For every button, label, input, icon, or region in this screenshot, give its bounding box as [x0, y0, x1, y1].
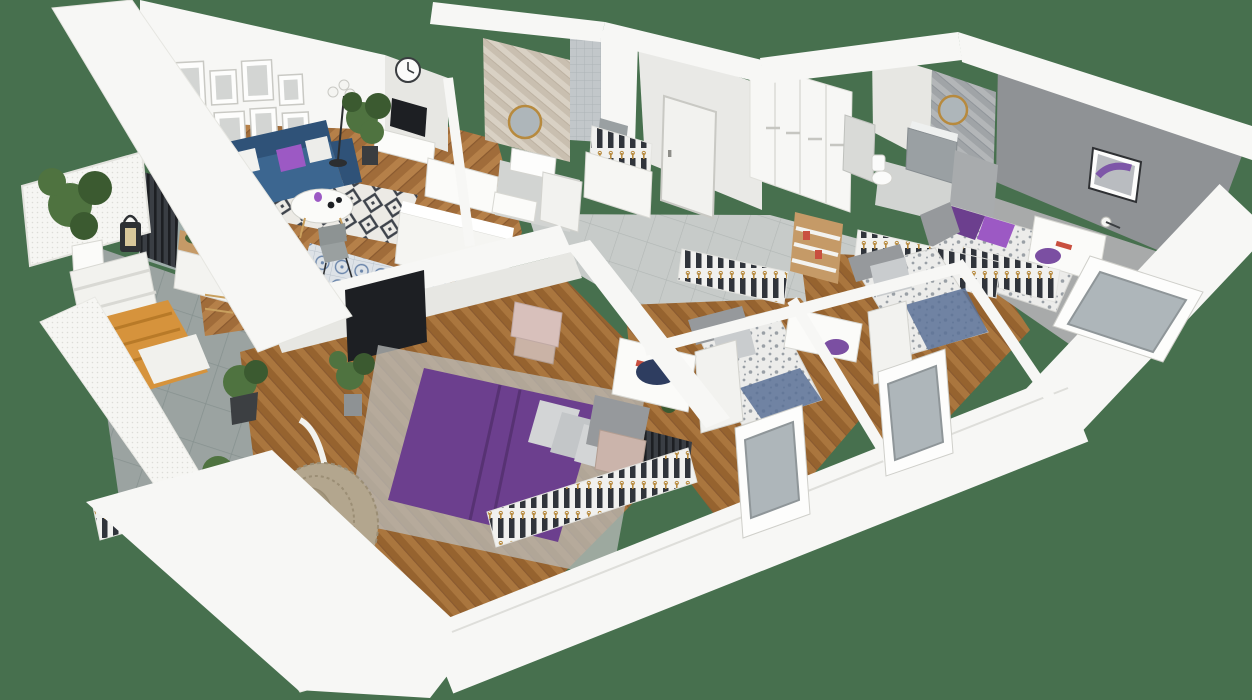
door-handle: [668, 150, 671, 157]
window-bedroom1: [735, 405, 810, 538]
apartment-isometric-svg: [0, 0, 1252, 700]
window-bedroom2: [878, 349, 953, 476]
wall-clock: [396, 58, 420, 82]
shower-tile-wall: [570, 28, 601, 142]
vase: [314, 192, 322, 202]
floor-plan-render: [0, 0, 1252, 700]
bedroom3-chair: [1035, 248, 1061, 264]
bath2-round-mirror: [939, 96, 967, 124]
appliance-tower: [843, 115, 875, 182]
bath1-round-mirror: [509, 106, 541, 138]
